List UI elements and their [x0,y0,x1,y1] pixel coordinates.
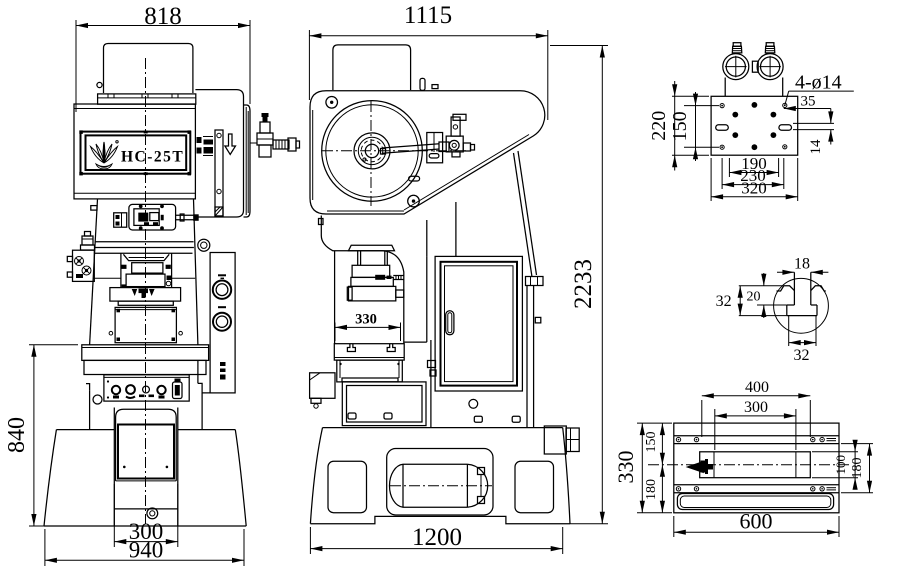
svg-text:150: 150 [669,111,691,141]
svg-text:1115: 1115 [404,2,452,29]
svg-text:330: 330 [613,451,638,484]
svg-text:150: 150 [644,432,659,453]
svg-text:20: 20 [747,290,761,305]
svg-text:180: 180 [850,458,865,479]
svg-text:320: 320 [741,179,767,198]
svg-text:940: 940 [129,538,164,563]
svg-text:300: 300 [744,399,768,416]
svg-text:32: 32 [716,293,732,310]
svg-text:840: 840 [4,417,30,453]
svg-text:400: 400 [745,379,769,396]
svg-text:14: 14 [808,139,824,155]
svg-text:220: 220 [648,111,670,141]
svg-text:1200: 1200 [412,524,462,551]
svg-text:2233: 2233 [570,259,597,309]
svg-text:18: 18 [794,256,810,273]
svg-text:100: 100 [833,455,848,475]
svg-text:35: 35 [801,94,816,110]
svg-text:180: 180 [644,479,659,500]
svg-text:600: 600 [740,509,773,534]
svg-text:4-ø14: 4-ø14 [795,72,842,94]
svg-text:330: 330 [355,312,377,328]
svg-text:HC-25T: HC-25T [121,149,184,166]
svg-text:32: 32 [794,347,810,364]
